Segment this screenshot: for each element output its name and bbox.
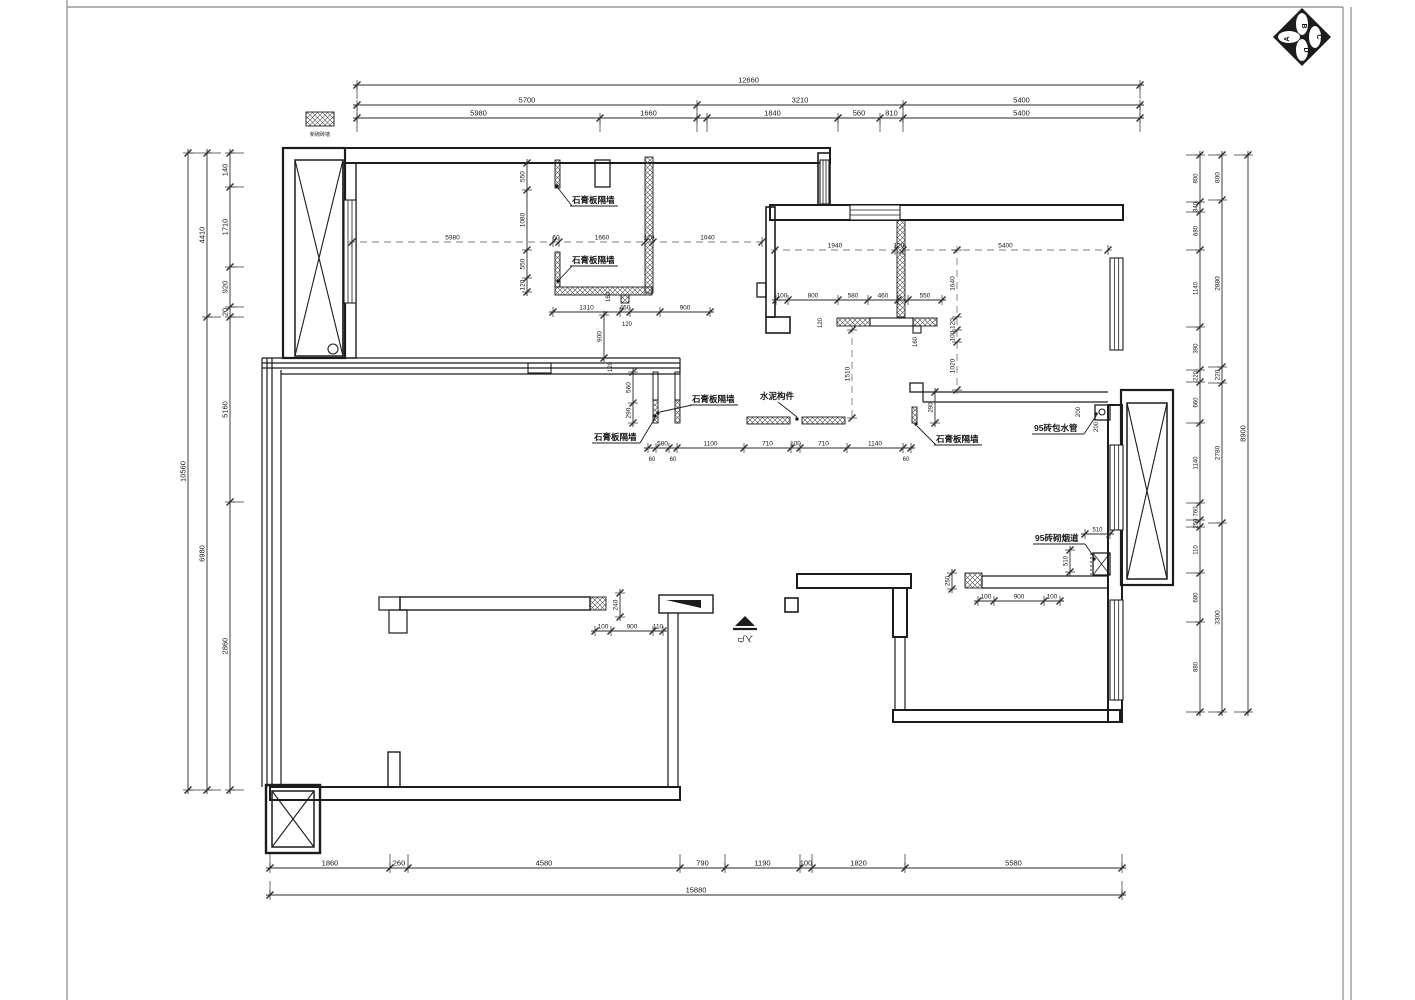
window-icon bbox=[344, 200, 356, 303]
annotation-label: 95砖包水管 bbox=[1034, 423, 1078, 433]
dim-text: 250 bbox=[946, 575, 952, 586]
window-icon bbox=[1110, 600, 1123, 700]
dim-text: 1310 bbox=[579, 305, 594, 312]
dim-text: 60 bbox=[670, 457, 677, 463]
cad-viewport[interactable]: 1266057003210540059801660184056081054001… bbox=[0, 0, 1415, 1000]
dim-text: 5980 bbox=[445, 235, 460, 242]
dim-text: 8900 bbox=[1239, 425, 1248, 442]
compass-letter: B bbox=[1300, 23, 1307, 28]
dim-text: 100 bbox=[790, 441, 801, 448]
dim-text: 510 bbox=[1092, 528, 1103, 534]
entry-label: 入户 bbox=[737, 634, 753, 644]
dim-text: 5400 bbox=[998, 243, 1013, 250]
annotation-label: 石膏板隔墙 bbox=[935, 434, 979, 444]
dim-text: 120 bbox=[608, 361, 614, 372]
wall bbox=[893, 588, 907, 637]
wall bbox=[388, 752, 400, 787]
leader-line bbox=[559, 266, 572, 280]
annotation-label: 石膏板隔墙 bbox=[593, 432, 637, 442]
dim-text: 100 bbox=[950, 330, 957, 341]
dim-text: 60 bbox=[649, 457, 656, 463]
dim-text: 1860 bbox=[322, 859, 339, 868]
dim-text: 15880 bbox=[686, 886, 707, 895]
pipe-circle-icon bbox=[328, 344, 338, 354]
wall bbox=[379, 597, 400, 610]
dim-text: 1660 bbox=[595, 235, 610, 242]
leader-dot bbox=[653, 414, 656, 417]
window-icon bbox=[820, 160, 829, 204]
hatched-wall bbox=[912, 407, 917, 423]
wall bbox=[770, 205, 1123, 220]
dim-text: 100 bbox=[598, 624, 609, 631]
dim-text: 900 bbox=[680, 305, 691, 312]
dim-text: 120 bbox=[622, 322, 633, 328]
dim-text: 100 bbox=[800, 859, 813, 868]
wall bbox=[389, 610, 407, 633]
dim-text: 3210 bbox=[792, 96, 809, 105]
wall bbox=[870, 318, 913, 326]
dim-text: 710 bbox=[762, 441, 773, 448]
dim-text: 1640 bbox=[950, 276, 957, 291]
dim-text: 550 bbox=[520, 171, 527, 182]
wall bbox=[893, 710, 1120, 722]
hatched-wall bbox=[802, 417, 845, 424]
dim-text: 800 bbox=[1194, 173, 1200, 184]
dim-text: 120 bbox=[894, 243, 905, 250]
hatched-wall bbox=[306, 112, 334, 126]
dim-text: 240 bbox=[613, 599, 620, 610]
dim-text: 1020 bbox=[950, 358, 957, 373]
window-icon bbox=[1110, 258, 1123, 350]
dim-text: 60 bbox=[903, 457, 910, 463]
dim-text: 580 bbox=[848, 293, 859, 300]
wall bbox=[675, 372, 680, 400]
dim-text: 200 bbox=[1076, 406, 1082, 417]
dim-text: 920 bbox=[221, 281, 230, 294]
dim-text: 5160 bbox=[221, 401, 230, 418]
leader-dot bbox=[914, 422, 917, 425]
annotation-label: 石膏板隔墙 bbox=[691, 394, 735, 404]
dim-text: 1100 bbox=[704, 441, 718, 448]
compass-letter: C bbox=[1315, 34, 1322, 39]
dim-text: 340 bbox=[1194, 201, 1200, 212]
leader-line bbox=[558, 188, 572, 206]
dim-text: 290 bbox=[626, 407, 633, 418]
dim-text: 390 bbox=[1194, 343, 1200, 354]
dim-text: 260 bbox=[393, 859, 406, 868]
hatched-wall bbox=[590, 597, 606, 610]
dim-text: 5980 bbox=[470, 109, 487, 118]
annotation-label: 石膏板隔墙 bbox=[571, 195, 615, 205]
hatched-wall bbox=[965, 573, 982, 588]
dim-text: 3300 bbox=[1215, 610, 1222, 625]
leader-line bbox=[917, 426, 936, 445]
dim-text: 20 bbox=[221, 308, 230, 316]
dim-text: 900 bbox=[597, 331, 604, 342]
wall bbox=[400, 597, 590, 610]
legend-label: 新砌砖墙 bbox=[310, 131, 330, 138]
wall bbox=[766, 317, 790, 333]
dim-text: 550 bbox=[520, 258, 527, 269]
dim-text: 110 bbox=[653, 624, 664, 631]
dim-text: 6980 bbox=[198, 545, 207, 562]
compass-letter: D bbox=[1302, 47, 1309, 52]
leader-dot bbox=[556, 279, 559, 282]
dim-text: 810 bbox=[885, 109, 898, 118]
dim-text: 1940 bbox=[828, 243, 843, 250]
wall bbox=[345, 148, 830, 163]
dim-text: 5580 bbox=[1005, 859, 1022, 868]
dim-text: 1140 bbox=[1194, 281, 1200, 295]
dim-text: 200 bbox=[1094, 421, 1100, 432]
annotation-label: 水泥构件 bbox=[759, 391, 795, 401]
dim-text: 550 bbox=[920, 293, 931, 300]
dim-text: 900 bbox=[627, 624, 638, 631]
pipe-circle-icon bbox=[1099, 409, 1105, 415]
dim-text: 10560 bbox=[179, 461, 188, 482]
dim-text: 60 bbox=[552, 235, 560, 242]
leader-line bbox=[1085, 544, 1094, 557]
leader-dot bbox=[555, 184, 558, 187]
dim-text: 1820 bbox=[850, 859, 867, 868]
dim-text: 160 bbox=[606, 291, 612, 302]
dim-text: 880 bbox=[1194, 661, 1200, 672]
dim-text: 560 bbox=[626, 382, 633, 393]
dim-text: 5400 bbox=[1013, 96, 1030, 105]
dim-text: 800 bbox=[808, 293, 819, 300]
dim-text: 1660 bbox=[640, 109, 657, 118]
dim-text: 12660 bbox=[738, 76, 759, 85]
wall bbox=[653, 372, 658, 400]
window-icon bbox=[850, 205, 900, 220]
dim-text: 290 bbox=[929, 402, 935, 413]
wall bbox=[910, 383, 923, 392]
wall bbox=[766, 207, 775, 317]
hatched-wall bbox=[555, 160, 560, 188]
dim-text: 790 bbox=[696, 859, 709, 868]
dim-text: 120 bbox=[644, 235, 655, 242]
door-swing-icon bbox=[666, 600, 701, 608]
hatched-wall bbox=[621, 295, 629, 303]
dim-text: 760 bbox=[1194, 506, 1200, 517]
dim-text: 220 bbox=[1215, 369, 1222, 380]
annotation-label: 石膏板隔墙 bbox=[571, 255, 615, 265]
dim-text: 2860 bbox=[221, 638, 230, 655]
dim-text: 160 bbox=[913, 336, 919, 347]
wall bbox=[913, 326, 921, 333]
dim-text: 1190 bbox=[754, 859, 770, 868]
hatched-wall bbox=[747, 417, 790, 424]
dim-text: 4580 bbox=[536, 859, 553, 868]
dim-text: 1140 bbox=[868, 441, 882, 448]
dim-text: 510 bbox=[1064, 555, 1070, 566]
dim-text: 580 bbox=[657, 441, 668, 448]
wall bbox=[757, 283, 766, 297]
wall bbox=[797, 574, 911, 588]
dim-text: 900 bbox=[1014, 594, 1025, 601]
compass-letter: A bbox=[1284, 36, 1291, 41]
wall bbox=[595, 160, 610, 187]
leader-dot bbox=[795, 417, 798, 420]
dim-text: 4410 bbox=[198, 227, 207, 244]
dim-text: 5700 bbox=[519, 96, 536, 105]
hatched-wall bbox=[837, 318, 870, 326]
wall bbox=[1121, 390, 1173, 585]
leader-line bbox=[640, 418, 655, 443]
entry-arrow-icon bbox=[735, 616, 755, 626]
dim-text: 250 bbox=[1194, 518, 1200, 529]
dim-text: 680 bbox=[1194, 225, 1200, 236]
leader-dot bbox=[1094, 412, 1097, 415]
dim-text: 560 bbox=[853, 109, 866, 118]
dim-text: 120 bbox=[950, 318, 957, 329]
dim-text: 5400 bbox=[1013, 109, 1030, 118]
dim-text: 460 bbox=[878, 293, 889, 300]
dim-text: 1080 bbox=[520, 212, 527, 227]
hatched-wall bbox=[645, 157, 653, 293]
dim-text: 120 bbox=[520, 279, 527, 290]
hatched-wall bbox=[675, 400, 680, 423]
dim-text: 2780 bbox=[1215, 445, 1222, 460]
leader-line bbox=[778, 402, 797, 417]
dim-text: 100 bbox=[777, 293, 788, 300]
dim-text: 100 bbox=[1047, 594, 1058, 601]
dim-text: 680 bbox=[1194, 592, 1200, 603]
leader-dot bbox=[1092, 557, 1095, 560]
dim-text: 110 bbox=[1194, 545, 1200, 555]
dim-text: 2880 bbox=[1215, 276, 1222, 291]
dim-text: 800 bbox=[1215, 172, 1222, 183]
dim-text: 1710 bbox=[221, 219, 230, 236]
dim-text: 1140 bbox=[1194, 456, 1200, 470]
hatched-wall bbox=[555, 287, 652, 295]
dim-text: 1840 bbox=[764, 109, 781, 118]
dim-text: 1510 bbox=[845, 366, 852, 381]
window-icon bbox=[1110, 445, 1123, 530]
wall bbox=[785, 598, 798, 612]
dim-text: 120 bbox=[818, 317, 824, 328]
dim-text: 100 bbox=[981, 594, 992, 601]
annotation-label: 95砖砌烟道 bbox=[1035, 533, 1079, 543]
dim-text: 460 bbox=[620, 305, 631, 312]
dim-text: 220 bbox=[1194, 370, 1200, 381]
dim-text: 710 bbox=[818, 441, 829, 448]
leader-dot bbox=[656, 411, 659, 414]
hatched-wall bbox=[913, 318, 937, 326]
dim-text: 1040 bbox=[700, 235, 715, 242]
floorplan-canvas[interactable]: 1266057003210540059801660184056081054001… bbox=[0, 0, 1415, 1000]
dim-text: 140 bbox=[221, 164, 230, 177]
wall bbox=[270, 787, 680, 800]
dim-text: 660 bbox=[1194, 397, 1200, 408]
